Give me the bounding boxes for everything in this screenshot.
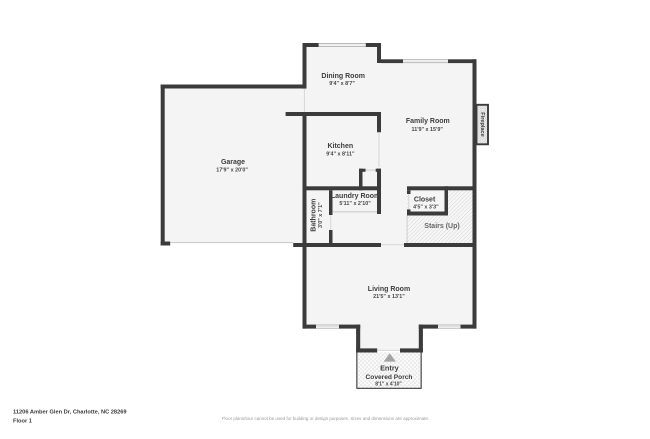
svg-text:Garage: Garage [221,159,245,166]
svg-text:Entry: Entry [380,363,400,372]
svg-text:Stairs (Up): Stairs (Up) [424,223,459,230]
svg-text:8'1" x 4'10": 8'1" x 4'10" [375,382,402,388]
svg-text:Floor 1: Floor 1 [13,419,32,425]
svg-text:Covered Porch: Covered Porch [366,374,413,381]
svg-text:9'4" x 8'7": 9'4" x 8'7" [329,81,355,87]
svg-text:4'5" x 3'3": 4'5" x 3'3" [413,204,439,210]
svg-text:11'9" x 15'9": 11'9" x 15'9" [412,127,444,133]
svg-text:11206 Amber Glen Dr, Charlotte: 11206 Amber Glen Dr, Charlotte, NC 28269 [13,409,127,415]
svg-text:21'5" x 13'1": 21'5" x 13'1" [373,294,405,300]
svg-text:Laundry Room: Laundry Room [331,193,380,200]
svg-text:Kitchen: Kitchen [327,143,353,150]
svg-text:Family Room: Family Room [406,118,450,125]
svg-text:Fireplace: Fireplace [479,112,485,137]
svg-text:5'11" x 2'10": 5'11" x 2'10" [339,201,371,207]
svg-text:Floor plans/tour cannot be use: Floor plans/tour cannot be used for buil… [222,416,429,421]
svg-text:17'9" x 20'0": 17'9" x 20'0" [216,168,248,174]
svg-text:Closet: Closet [414,196,436,203]
svg-text:Bathroom: Bathroom [311,199,318,232]
svg-text:9'4" x 8'11": 9'4" x 8'11" [326,152,355,158]
svg-text:Living Room: Living Room [368,286,410,293]
svg-text:Dining Room: Dining Room [321,73,365,80]
svg-text:3'0" x 7'1": 3'0" x 7'1" [318,202,324,228]
